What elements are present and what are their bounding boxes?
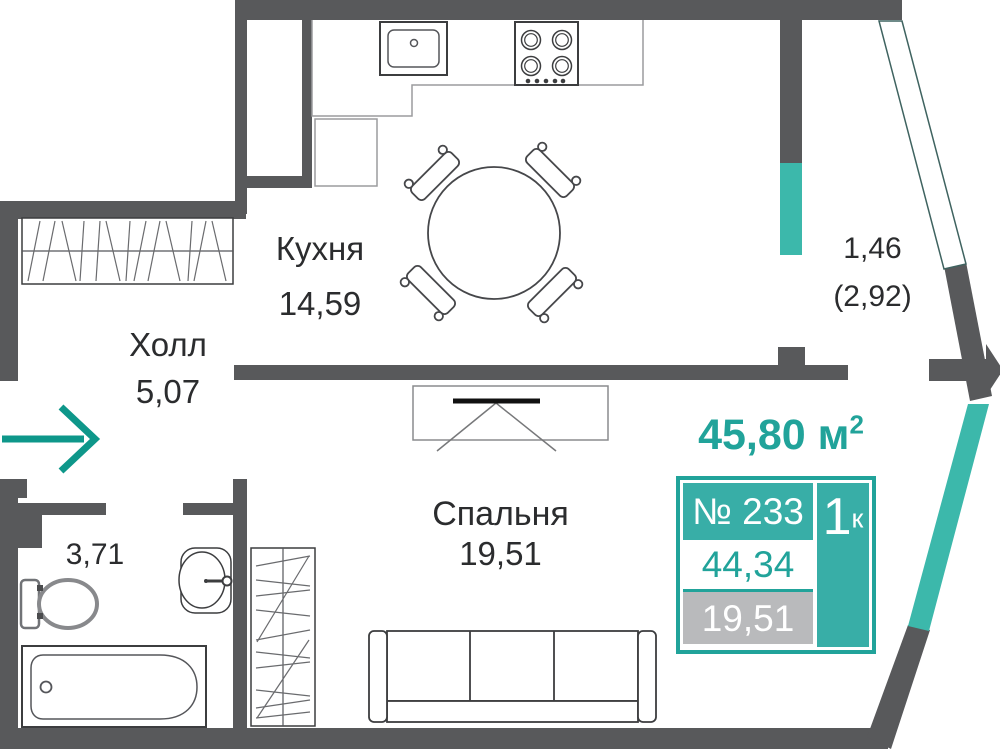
wall-entrance-stub [8, 479, 27, 498]
sofa [369, 631, 656, 722]
dining-table [428, 167, 560, 299]
wall-bath-top-left [18, 503, 106, 515]
bathroom-sink [179, 548, 232, 613]
wall-section-bar [929, 359, 993, 381]
wall-hall-top [0, 201, 246, 219]
bedroom-area-label: 19,51 [418, 537, 583, 570]
hall-closet [22, 218, 233, 284]
wall-bath-door-block [18, 515, 42, 548]
total-area-title: 45,80 м2 [656, 414, 906, 457]
wall-shaft-bottom [245, 176, 312, 188]
unit-card-left-column: № 233 44,34 19,51 [680, 480, 813, 650]
balcony-area-label: 1,46 [810, 234, 935, 264]
wall-bedroom-divider [234, 365, 848, 380]
hall-name-label: Холл [98, 328, 238, 361]
wall-balcony-teal-window [780, 163, 802, 255]
balcony-area-alt-label: (2,92) [810, 282, 935, 312]
wall-left-upper [0, 201, 18, 381]
bathroom-fixtures [21, 548, 232, 727]
total-area-sup: 2 [849, 410, 863, 440]
total-area-value: 45,80 [698, 411, 806, 459]
bathroom-area-label: 3,71 [40, 540, 150, 570]
kitchen-cabinet [315, 119, 377, 186]
wall-right-slant-lower [867, 625, 930, 749]
unit-rooms-count: 1 [823, 488, 852, 546]
total-area-unit: м [806, 411, 850, 459]
unit-living-area-badge: 19,51 [683, 589, 813, 644]
wall-shaft-right [302, 18, 312, 186]
wall-section-arrow [986, 344, 1000, 396]
wall-bath-right [233, 479, 247, 729]
kitchen-sink [380, 22, 447, 75]
hall-area-label: 5,07 [98, 375, 238, 408]
unit-rooms-badge: 1к [817, 483, 869, 647]
kitchen-name-label: Кухня [250, 232, 390, 265]
wall-right-teal-window [908, 404, 989, 631]
wall-divider-step [778, 347, 805, 365]
unit-info-card: № 233 44,34 19,51 1к [676, 476, 876, 654]
entrance-arrow-icon [2, 407, 95, 471]
tv-unit [413, 386, 608, 451]
kitchen-stove [515, 22, 578, 85]
bedroom-name-label: Спальня [418, 497, 583, 531]
unit-number-badge: № 233 [683, 483, 813, 540]
toilet [21, 580, 97, 628]
kitchen-counter [312, 20, 643, 116]
wall-left-lower [0, 479, 18, 735]
unit-rooms-suffix: к [852, 504, 864, 534]
kitchen-area-label: 14,59 [250, 287, 390, 320]
kitchen-furniture [312, 20, 643, 324]
floor-plan: Кухня 14,59 Холл 5,07 3,71 Спальня 19,51… [0, 0, 1000, 749]
wall-balcony-gray [780, 0, 802, 163]
bathtub [22, 646, 206, 727]
wall-bottom [0, 728, 888, 749]
unit-total-area: 44,34 [683, 540, 813, 589]
bedroom-wardrobe [251, 548, 315, 726]
